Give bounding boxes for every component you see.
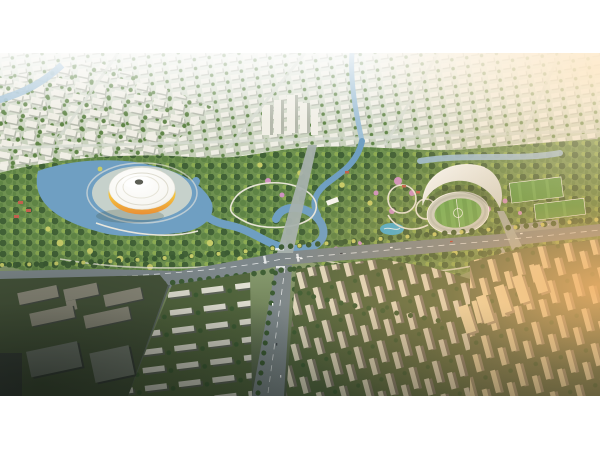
screenshot-canvas bbox=[0, 0, 600, 450]
sun-haze-top-right bbox=[0, 53, 600, 396]
aerial-rendering-photo bbox=[0, 53, 600, 396]
letterbox-bottom bbox=[0, 396, 600, 450]
letterbox-top bbox=[0, 0, 600, 53]
